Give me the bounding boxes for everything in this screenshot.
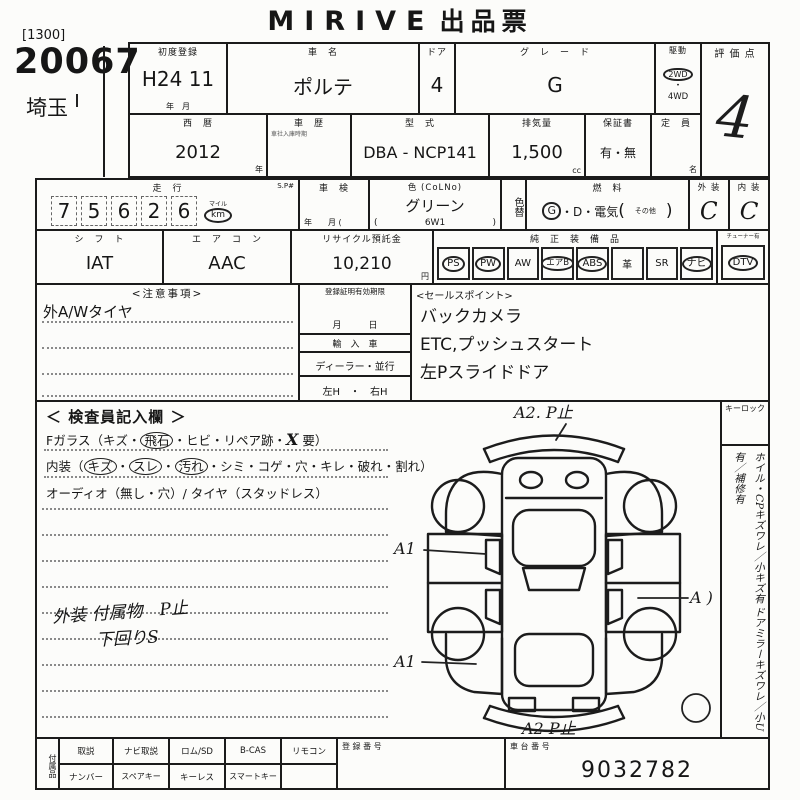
left-door-window-2 xyxy=(486,590,500,624)
fglass-required: 要） xyxy=(298,433,327,448)
mileage-digit: 6 xyxy=(111,196,137,226)
roof-panel xyxy=(523,568,585,590)
displacement-unit: cc xyxy=(572,166,581,175)
year-label: 西 暦 xyxy=(130,115,266,129)
cell-navi-manual: ナビ取説 xyxy=(112,737,170,765)
car-body xyxy=(502,458,606,710)
sep: ・ xyxy=(162,459,175,474)
interior-items: 内装（ xyxy=(46,459,84,474)
accessories-label-cell: 付属品 xyxy=(35,737,60,790)
aircon-value: AAC xyxy=(164,244,290,283)
front-bumper xyxy=(484,436,624,450)
equip-ps: PS xyxy=(437,247,470,280)
fuel-gasoline-circled: G xyxy=(542,202,561,219)
inspector-title: ＜ 検査員記入欄 ＞ xyxy=(46,406,186,427)
ruled-line xyxy=(42,664,388,666)
spare-key-label: スペアキー xyxy=(114,765,168,788)
handwritten-circle-mark xyxy=(682,694,710,722)
inspector-handwritten-note2: 下回りS xyxy=(95,622,159,650)
first-registration-units: 年 月 xyxy=(130,101,226,112)
equip-leather: 革 xyxy=(611,247,644,280)
ruled-line xyxy=(44,449,388,451)
fuel-paren-left: ( xyxy=(618,201,625,221)
capacity-label: 定 員 xyxy=(652,115,700,129)
brand-logo: MIRIVE xyxy=(267,6,434,37)
navi-manual-label: ナビ取説 xyxy=(114,739,168,763)
car-diagram: A2. P止 A1 A ) A1 A2 P止 xyxy=(388,402,720,737)
mile-label: マイル xyxy=(209,199,227,208)
ruled-line xyxy=(42,373,293,375)
ruled-line xyxy=(42,534,388,536)
rom-sd-label: ロム/SD xyxy=(170,739,224,763)
annotation-left1: A1 xyxy=(392,539,416,558)
chassis-number-cell: 車 台 番 号 9032782 xyxy=(504,737,770,790)
displacement-value: 1,500 xyxy=(490,128,584,176)
interior-scuff-circled: スレ xyxy=(129,458,162,475)
door-value: 4 xyxy=(420,57,454,113)
interior-scratch-circled: キズ xyxy=(84,458,117,475)
remote-label: リモコン xyxy=(282,739,336,763)
cautions-cell: <注意事項> 外A/Wタイヤ xyxy=(35,283,300,402)
mileage-cell: 走 行 S.P# 7 5 6 2 6 マイル km xyxy=(35,178,300,231)
drive-dot: ・ xyxy=(674,81,683,92)
drive-options: 2WD ・ 4WD xyxy=(656,57,700,113)
dealer-parallel-label: ディーラー・並行 xyxy=(300,358,410,373)
score-cell: 評 価 点 4 xyxy=(700,42,770,178)
recycle-fee-label: リサイクル預託金 xyxy=(292,231,432,245)
leader-line-top xyxy=(556,424,566,440)
sales-point: 左Pスライドドア xyxy=(420,358,549,383)
equip-aw: AW xyxy=(507,247,540,280)
warranty-label: 保証書 xyxy=(586,115,650,129)
color-change-label: 色替 xyxy=(502,184,525,229)
color-code-row: ( 6W1 ) xyxy=(374,218,496,228)
leader-line-left1 xyxy=(424,550,486,554)
color-change-cell: 色替 xyxy=(500,178,527,231)
interior-grade-value: C xyxy=(729,192,769,230)
registration-cert-label: 登録証明有効期限 xyxy=(300,285,410,297)
car-name-cell: 車 名 ポルテ xyxy=(226,42,420,115)
wheel-rear-left xyxy=(432,608,484,660)
capacity-unit: 名 xyxy=(689,164,697,175)
cautions-title: <注意事項> xyxy=(37,285,298,301)
color-value: グリーン xyxy=(370,193,500,217)
history-label: 車 歴 xyxy=(268,115,350,129)
fuel-cell: 燃 料 G・D・電気(その他) xyxy=(525,178,690,231)
mileage-digit: 5 xyxy=(81,196,107,226)
sales-point: ETC,プッシュスタート xyxy=(420,330,593,355)
recycle-fee-unit: 円 xyxy=(421,271,429,282)
side-note-line1: ホイル・CPキズワレ／小キズ有 xyxy=(753,452,765,604)
color-cell: 色 (CoLNo) グリーン ( 6W1 ) xyxy=(368,178,502,231)
windshield xyxy=(513,510,595,566)
cautions-text: 外A/Wタイヤ xyxy=(43,301,133,322)
hand-dash xyxy=(76,94,78,107)
ruled-line xyxy=(42,638,388,640)
aircon-cell: エ ア コ ン AAC xyxy=(162,229,292,285)
recycle-fee-cell: リサイクル預託金 10,210 円 xyxy=(290,229,434,285)
keylock-cell: キーロック xyxy=(720,400,770,446)
registration-cert-cell: 登録証明有効期限 月 日 輸 入 車 ディーラー・並行 左H ・ 右H xyxy=(298,283,412,402)
cell-number-plate: ナンバー xyxy=(58,763,114,790)
cert-date-units: 月 日 xyxy=(300,318,410,331)
cell-bcas: B-CAS xyxy=(224,737,282,765)
chassis-number-label: 車 台 番 号 xyxy=(510,741,550,752)
ruled-line xyxy=(42,716,388,718)
fglass-x-mark: X xyxy=(286,430,298,449)
leather-label: 革 xyxy=(622,256,632,271)
interior-dirt-circled: 汚れ xyxy=(175,458,208,475)
airbag-circled: エアB xyxy=(541,256,574,270)
year-cell: 西 暦 2012 年 xyxy=(128,113,268,178)
sales-points-cell: <セールスポイント> バックカメラ ETC,プッシュスタート 左Pスライドドア xyxy=(410,283,770,402)
ruled-line xyxy=(42,690,388,692)
exterior-grade-value: C xyxy=(689,192,729,231)
displacement-cell: 排気量 1,500 cc xyxy=(488,113,586,178)
fuel-options: ・D・電気 xyxy=(561,203,618,220)
divider xyxy=(300,375,410,377)
annotation-right: A ) xyxy=(688,588,713,607)
mileage-digit: 6 xyxy=(171,196,197,226)
rear-window xyxy=(515,634,593,686)
equip-pw: PW xyxy=(472,247,505,280)
pw-circled: PW xyxy=(475,256,501,272)
fglass-stone-chip-circled: 飛石 xyxy=(140,432,173,449)
left-rule xyxy=(103,46,105,177)
first-registration-cell: 初度登録 H24 11 年 月 xyxy=(128,42,228,115)
model-code-cell: 型 式 DBA - NCP141 xyxy=(350,113,490,178)
equip-navi: ナビ xyxy=(680,247,713,280)
shift-value: IAT xyxy=(37,244,162,283)
equip-airbag: エアB xyxy=(541,247,574,280)
shift-label: シ フ ト xyxy=(37,231,162,245)
smart-key-label: スマートキー xyxy=(226,765,280,788)
import-label: 輸 入 車 xyxy=(300,337,410,350)
annotation-bottom: A2 P止 xyxy=(520,719,577,737)
dtv-tuner-note: チューナー有 xyxy=(718,231,768,240)
sales-points-title: <セールスポイント> xyxy=(416,287,513,302)
divider xyxy=(300,333,410,335)
registration-number-label: 登 録 番 号 xyxy=(342,741,382,752)
audio-tyre-line: オーディオ（無し・穴）/ タイヤ（スタッドレス） xyxy=(46,483,328,502)
ruled-line xyxy=(42,347,293,349)
capacity-cell: 定 員 名 xyxy=(650,113,702,178)
left-door-window-1 xyxy=(486,540,500,574)
dtv-circled: DTV xyxy=(728,255,759,271)
door-label: ドア xyxy=(420,44,454,58)
history-cell: 車 歴 車社入庫時期 xyxy=(266,113,352,178)
wheel-rear-right xyxy=(624,608,676,660)
right-door-window-1 xyxy=(608,540,622,574)
navi-circled: ナビ xyxy=(682,256,712,272)
ps-circled: PS xyxy=(442,256,464,272)
ruled-line xyxy=(42,508,388,510)
equipment-label: 純 正 装 備 品 xyxy=(434,231,716,245)
leader-line-left2 xyxy=(422,662,476,664)
ruled-line xyxy=(44,476,388,478)
first-registration-value: H24 11 xyxy=(130,57,226,101)
right-door-window-2 xyxy=(608,590,622,624)
ruled-line xyxy=(42,586,388,588)
mileage-digits: 7 5 6 2 6 マイル km xyxy=(51,196,232,226)
cell-keyless: キーレス xyxy=(168,763,226,790)
grade-cell: グ レ ー ド G xyxy=(454,42,656,115)
exterior-grade-cell: 外 装 C xyxy=(688,178,730,231)
km-badge: マイル km xyxy=(204,199,232,223)
registration-number-cell: 登 録 番 号 xyxy=(336,737,506,790)
keylock-label: キーロック xyxy=(722,402,768,414)
fglass-line: Fガラス（キズ・飛石・ヒビ・リペア跡・X 要） xyxy=(46,430,327,449)
aircon-label: エ ア コ ン xyxy=(164,231,290,245)
year-unit: 年 xyxy=(255,164,263,175)
ruled-line xyxy=(42,395,293,397)
right-rear-quarter xyxy=(606,634,662,694)
ruled-line xyxy=(42,321,293,323)
year-value: 2012 xyxy=(130,128,266,176)
recycle-fee-value: 10,210 xyxy=(292,244,432,283)
warranty-cell: 保証書 有・無 xyxy=(584,113,652,178)
region-label: 埼玉 xyxy=(26,92,68,122)
auction-house-code: [1300] xyxy=(22,28,65,43)
doc-type: 出品票 xyxy=(440,7,533,36)
equip-sr: SR xyxy=(646,247,679,280)
paren-right: ) xyxy=(492,218,496,228)
headlight-left xyxy=(520,472,542,488)
mileage-label: 走 行 xyxy=(37,180,298,194)
equipment-boxes: PS PW AW エアB ABS 革 SR ナビ xyxy=(437,247,715,280)
cell-manual: 取説 xyxy=(58,737,114,765)
sheet-title: MIRIVE 出品票 xyxy=(0,2,800,38)
interior-grade-cell: 内 装 C xyxy=(728,178,770,231)
grade-value: G xyxy=(456,57,654,113)
lot-number: 20067 xyxy=(14,42,141,82)
bcas-label: B-CAS xyxy=(226,739,280,763)
drive-2wd-circled: 2WD xyxy=(663,68,692,82)
mileage-digit: 2 xyxy=(141,196,167,226)
car-name-label: 車 名 xyxy=(228,44,418,58)
color-label: 色 (CoLNo) xyxy=(370,180,500,193)
fuel-other-label: その他 xyxy=(625,206,666,216)
side-vertical-notes: ホイル・CPキズワレ／小キズ有 ドアミラーキズワレ／小U有／補修有 xyxy=(722,452,768,734)
shaken-label: 車 検 xyxy=(300,180,368,194)
cell-spare-key: スペアキー xyxy=(112,763,170,790)
model-code-value: DBA - NCP141 xyxy=(352,128,488,176)
equipment-cell: 純 正 装 備 品 PS PW AW エアB ABS 革 SR ナビ xyxy=(432,229,718,285)
drive-cell: 駆動 2WD ・ 4WD xyxy=(654,42,702,115)
door-cell: ドア 4 xyxy=(418,42,456,115)
dtv-box: DTV xyxy=(721,245,765,280)
dtv-cell: チューナー有 DTV xyxy=(716,229,770,285)
km-circled: km xyxy=(204,208,232,223)
shift-cell: シ フ ト IAT xyxy=(35,229,164,285)
wheel-front-left xyxy=(432,480,484,532)
auction-sheet: MIRIVE 出品票 [1300] 20067 埼玉 初度登録 H24 11 年… xyxy=(0,0,800,800)
aw-label: AW xyxy=(515,258,531,269)
grade-label: グ レ ー ド xyxy=(456,44,654,58)
paren-left: ( xyxy=(374,218,378,228)
fglass-items2: ・ヒビ・リペア跡・ xyxy=(173,433,286,448)
fglass-items: （キズ・ xyxy=(90,433,140,448)
shaken-cell: 車 検 年 月 ( xyxy=(298,178,370,231)
fglass-label: Fガラス xyxy=(46,433,90,448)
chassis-number-value: 9032782 xyxy=(506,752,768,788)
wheel-front-right xyxy=(624,480,676,532)
manual-label: 取説 xyxy=(60,739,112,763)
score-value-handwritten: 4 xyxy=(696,54,774,179)
sales-point: バックカメラ xyxy=(420,302,522,327)
cell-blank xyxy=(280,763,338,790)
history-fine-print: 車社入庫時期 xyxy=(271,129,307,138)
sp-label: S.P# xyxy=(277,182,294,190)
divider xyxy=(300,351,410,353)
fuel-label: 燃 料 xyxy=(527,180,688,194)
cell-smart-key: スマートキー xyxy=(224,763,282,790)
sr-label: SR xyxy=(655,258,668,269)
drive-4wd: 4WD xyxy=(668,92,688,103)
accessories-label: 付属品 xyxy=(37,743,58,788)
blank-cell xyxy=(282,765,336,788)
abs-circled: ABS xyxy=(577,256,607,272)
cell-remote: リモコン xyxy=(280,737,338,765)
fuel-value: G・D・電気(その他) xyxy=(527,193,688,229)
annotation-top: A2. P止 xyxy=(512,403,574,422)
shaken-units: 年 月 ( xyxy=(304,217,342,228)
equip-abs: ABS xyxy=(576,247,609,280)
annotation-left2: A1 xyxy=(392,652,416,671)
interior-grade-label: 内 装 xyxy=(730,180,768,193)
ruled-line xyxy=(42,560,388,562)
fuel-paren-right: ) xyxy=(666,201,673,221)
interior-line: 内装（キズ・スレ・汚れ・シミ・コゲ・穴・キレ・破れ・割れ） xyxy=(46,456,433,475)
warranty-value: 有・無 xyxy=(586,128,650,176)
model-code-label: 型 式 xyxy=(352,115,488,129)
sep: ・ xyxy=(117,459,130,474)
displacement-label: 排気量 xyxy=(490,115,584,129)
cell-rom-sd: ロム/SD xyxy=(168,737,226,765)
first-registration-label: 初度登録 xyxy=(130,44,226,58)
keyless-label: キーレス xyxy=(170,765,224,788)
handle-position-label: 左H ・ 右H xyxy=(300,383,410,398)
drive-label: 駆動 xyxy=(656,44,700,56)
number-plate-label: ナンバー xyxy=(60,765,112,788)
mileage-digit: 7 xyxy=(51,196,77,226)
color-code: 6W1 xyxy=(425,218,445,228)
headlight-right xyxy=(566,472,588,488)
car-name-value: ポルテ xyxy=(228,57,418,113)
